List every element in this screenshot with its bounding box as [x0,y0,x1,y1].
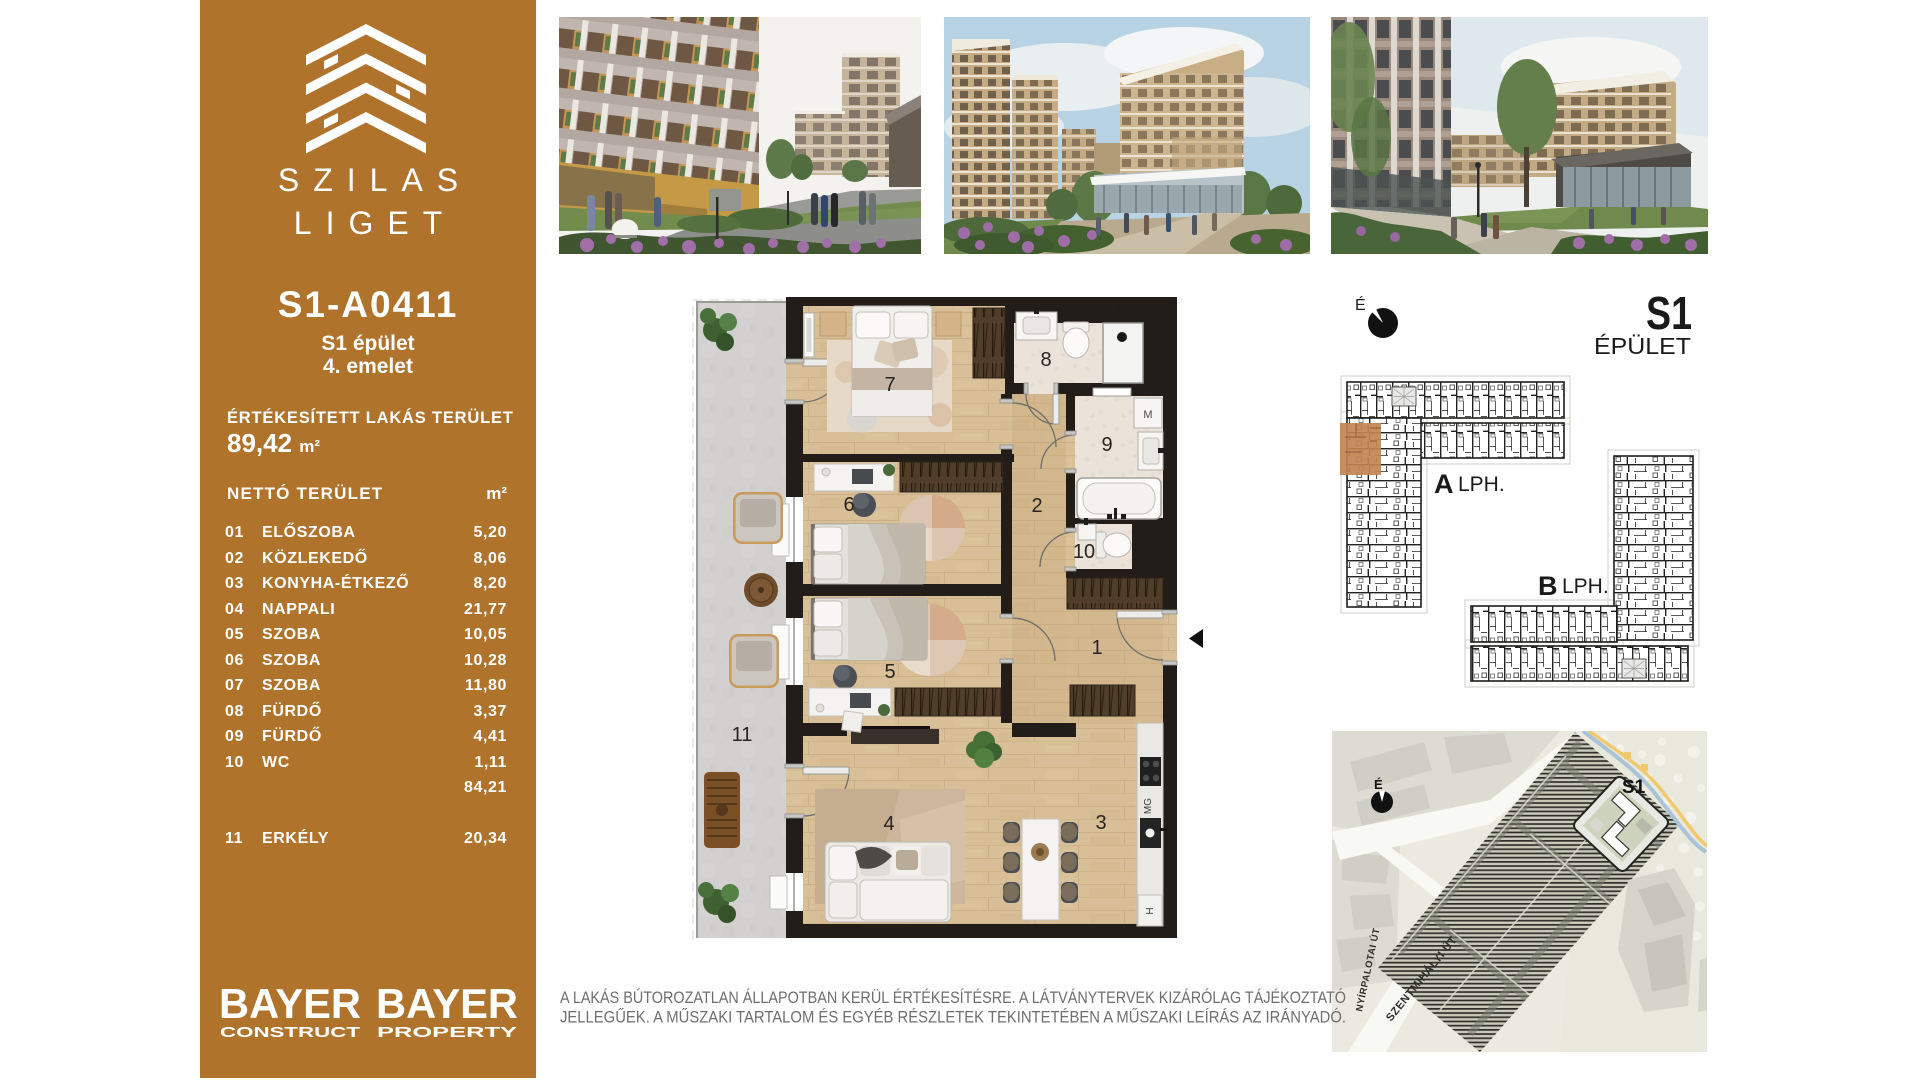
svg-text:PROPERTY: PROPERTY [377,1024,517,1041]
svg-text:S1: S1 [1646,290,1692,339]
svg-text:LPH.: LPH. [1562,575,1609,598]
svg-text:ÉPÜLET: ÉPÜLET [1594,333,1691,359]
svg-text:2: 2 [1031,495,1042,517]
svg-text:CONSTRUCT: CONSTRUCT [220,1024,360,1041]
svg-text:M: M [1143,409,1152,421]
svg-text:4: 4 [883,813,894,835]
svg-text:BAYER: BAYER [219,984,361,1027]
svg-text:5: 5 [884,661,895,683]
svg-text:A LAKÁS BÚTOROZATLAN ÁLLAPOTBA: A LAKÁS BÚTOROZATLAN ÁLLAPOTBAN KERÜL ÉR… [560,988,1346,1007]
svg-text:10: 10 [1073,541,1095,563]
svg-text:JELLEGŰEK. A MŰSZAKI TARTALOM: JELLEGŰEK. A MŰSZAKI TARTALOM ÉS EGYÉB R… [560,1008,1346,1027]
svg-text:8: 8 [1040,349,1051,371]
svg-text:H: H [1145,907,1156,914]
svg-text:MG: MG [1143,798,1154,814]
svg-text:É: É [1355,295,1366,314]
svg-text:3: 3 [1095,812,1106,834]
svg-text:6: 6 [843,494,854,516]
svg-text:LPH.: LPH. [1458,473,1505,496]
svg-text:B: B [1538,571,1558,601]
svg-text:7: 7 [884,374,895,396]
svg-text:S1: S1 [1622,777,1646,798]
svg-text:9: 9 [1101,434,1112,456]
svg-text:A: A [1434,469,1454,499]
svg-text:BAYER: BAYER [376,984,518,1027]
svg-text:É: É [1374,777,1383,792]
svg-text:11: 11 [732,724,753,746]
svg-text:1: 1 [1091,637,1102,659]
